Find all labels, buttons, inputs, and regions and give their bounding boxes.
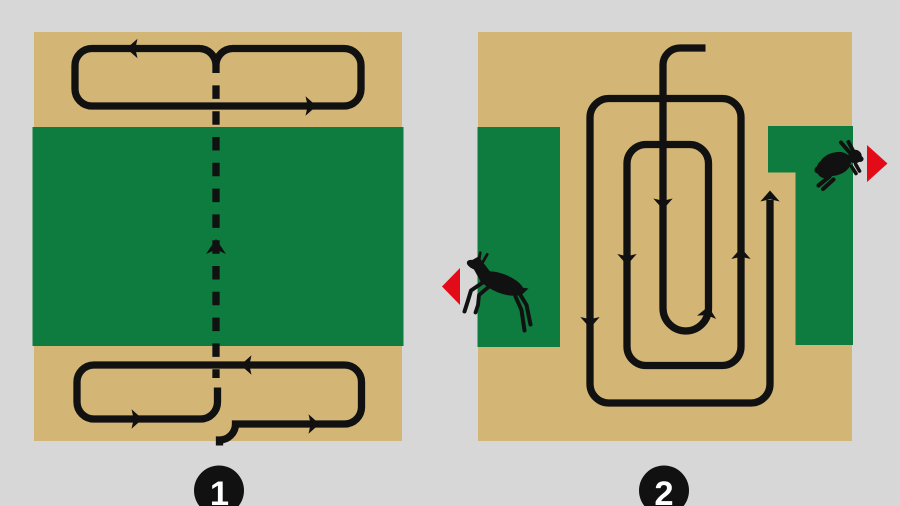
svg-text:2: 2 xyxy=(654,475,673,506)
svg-text:1: 1 xyxy=(210,475,229,506)
